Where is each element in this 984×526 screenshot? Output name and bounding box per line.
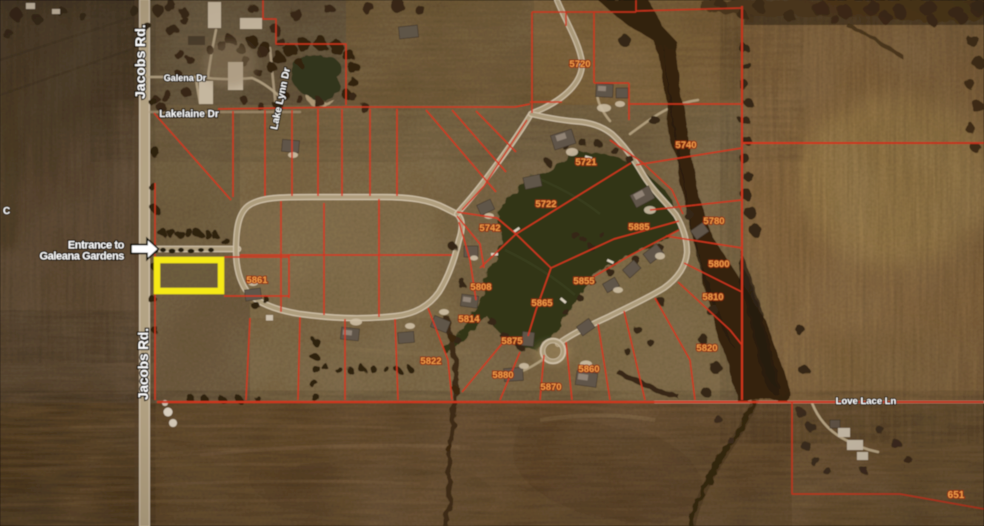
svg-text:5861: 5861 [246,275,268,286]
svg-text:5885: 5885 [628,222,650,233]
svg-text:5822: 5822 [420,356,441,367]
svg-text:Jacobs Rd.: Jacobs Rd. [136,328,151,400]
svg-text:Galeana Gardens: Galeana Gardens [40,251,125,263]
svg-text:5808: 5808 [470,282,491,293]
svg-text:5800: 5800 [708,259,729,270]
svg-text:5720: 5720 [569,59,590,70]
svg-text:5742: 5742 [479,223,500,234]
svg-text:5870: 5870 [540,382,561,393]
svg-text:5740: 5740 [675,140,696,151]
svg-text:5875: 5875 [501,336,523,347]
svg-text:651: 651 [948,490,965,501]
svg-text:5814: 5814 [458,314,480,325]
svg-text:5820: 5820 [696,343,717,354]
svg-text:5810: 5810 [702,292,723,303]
svg-text:C: C [3,206,10,217]
svg-text:Galena Dr: Galena Dr [164,73,207,83]
svg-text:5855: 5855 [573,276,595,287]
svg-text:Jacobs Rd.: Jacobs Rd. [132,24,148,99]
svg-text:5880: 5880 [492,370,513,381]
svg-text:5722: 5722 [535,199,556,210]
svg-text:5865: 5865 [531,298,553,309]
svg-text:Lakelaine Dr: Lakelaine Dr [159,109,219,120]
svg-text:5780: 5780 [703,216,724,227]
svg-text:5721: 5721 [575,157,597,168]
svg-text:5860: 5860 [578,364,599,375]
svg-text:Love Lace Ln: Love Lace Ln [836,396,897,407]
